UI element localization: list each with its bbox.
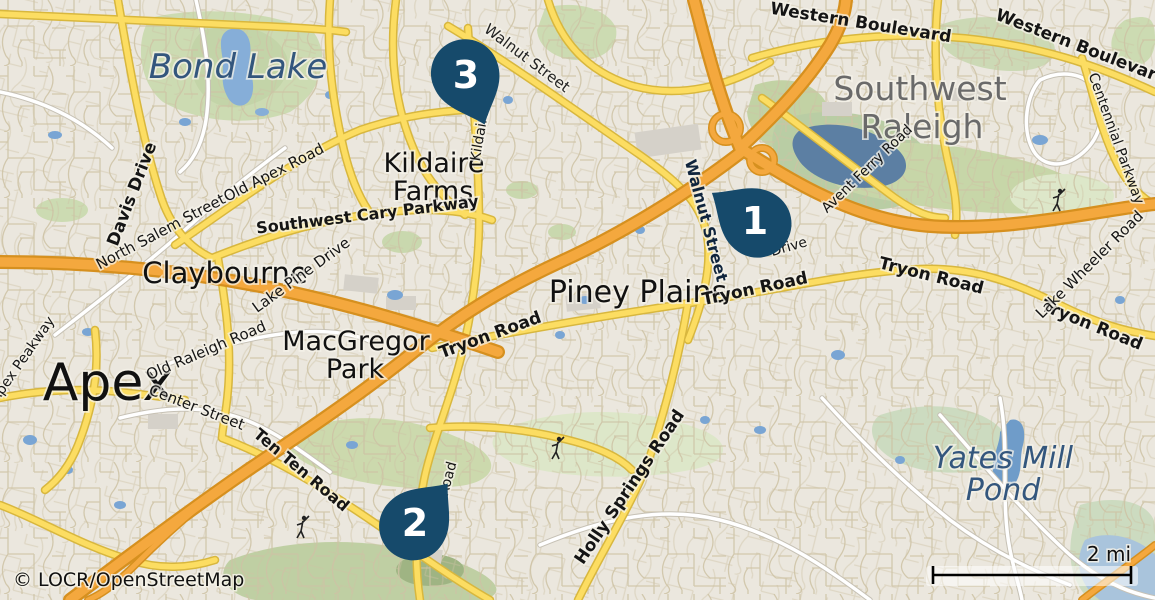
map-marker-number: 1	[742, 199, 768, 243]
map-label-southwest-raleigh-1: Southwest	[833, 69, 1006, 108]
scale-bar-label: 2 mi	[1087, 542, 1131, 566]
map-label-bond-lake: Bond Lake	[149, 47, 327, 87]
map-marker-number: 2	[402, 501, 428, 545]
map-label-macgregor-park-2: Park	[326, 354, 385, 385]
map-label-yates-mill-pond-2: Pond	[966, 473, 1041, 508]
map-label-macgregor-park-1: MacGregor	[282, 326, 430, 357]
map-marker-number: 3	[453, 53, 479, 97]
map-label-yates-mill-pond-1: Yates Mill	[933, 441, 1074, 476]
map-svg: Bond LakeSouthwestRaleighKildaireFarmsCl…	[0, 0, 1155, 600]
map-canvas[interactable]: Bond LakeSouthwestRaleighKildaireFarmsCl…	[0, 0, 1155, 600]
map-attribution: © LOCR/OpenStreetMap	[13, 569, 244, 591]
map-label-southwest-raleigh-2: Raleigh	[861, 107, 984, 146]
